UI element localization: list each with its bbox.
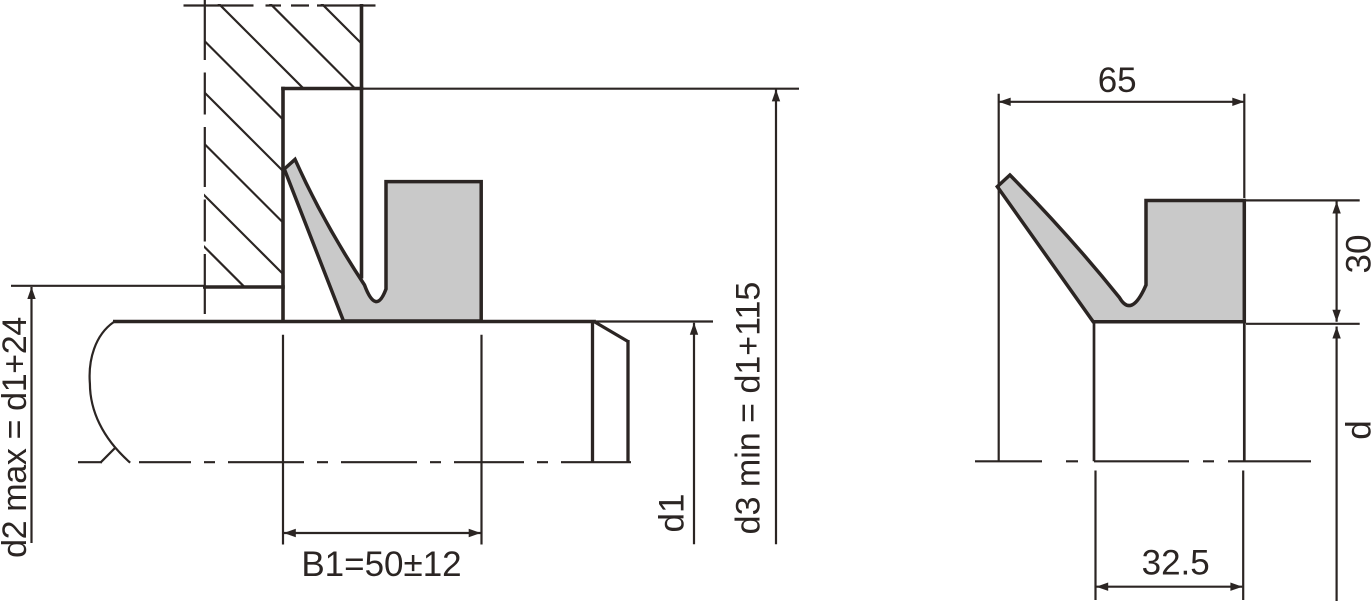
svg-text:d3 min = d1+115: d3 min = d1+115 bbox=[730, 282, 768, 535]
svg-text:d2 max = d1+24: d2 max = d1+24 bbox=[0, 317, 34, 558]
svg-text:d1: d1 bbox=[653, 494, 692, 533]
svg-text:30: 30 bbox=[1339, 235, 1371, 274]
svg-text:65: 65 bbox=[1098, 61, 1137, 100]
svg-text:32.5: 32.5 bbox=[1142, 544, 1210, 583]
svg-text:B1=50±12: B1=50±12 bbox=[301, 545, 461, 584]
svg-text:d: d bbox=[1339, 420, 1371, 439]
